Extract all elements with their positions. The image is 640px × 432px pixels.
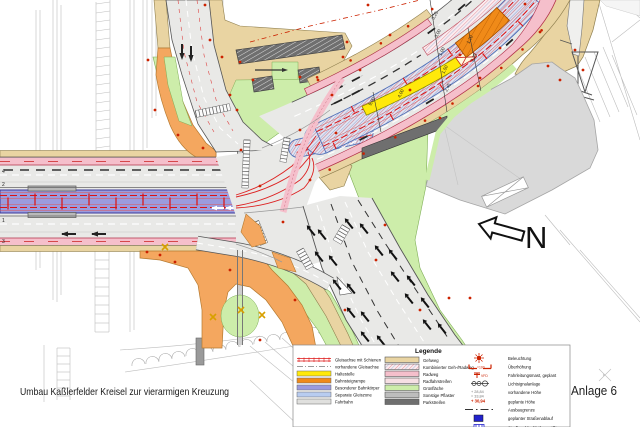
svg-text:Gleisachse mit Schienen: Gleisachse mit Schienen bbox=[335, 358, 382, 363]
svg-text:vorhandene Höhe: vorhandene Höhe bbox=[508, 390, 542, 395]
svg-text:vorhandene Gleisachse: vorhandene Gleisachse bbox=[335, 365, 380, 370]
svg-text:1: 1 bbox=[2, 218, 5, 224]
svg-text:Besonderer Bahnkörper: Besonderer Bahnkörper bbox=[335, 386, 380, 391]
svg-text:Legende: Legende bbox=[415, 348, 442, 355]
svg-text:Fahrleitungsmast, geplant: Fahrleitungsmast, geplant bbox=[508, 373, 557, 378]
svg-text:+ 30,94: + 30,94 bbox=[471, 399, 486, 404]
svg-text:Ausbaugrenze: Ausbaugrenze bbox=[508, 408, 536, 413]
svg-text:+ 28,84: + 28,84 bbox=[471, 390, 484, 394]
svg-text:Überhöhung: Überhöhung bbox=[508, 365, 532, 370]
svg-text:Bahnsteigrampe: Bahnsteigrampe bbox=[335, 379, 366, 384]
svg-text:Separate Gleiszone: Separate Gleiszone bbox=[335, 393, 372, 398]
svg-text:Beleuchtung: Beleuchtung bbox=[508, 356, 532, 361]
svg-text:Fahrbahn: Fahrbahn bbox=[335, 400, 354, 405]
svg-text:3: 3 bbox=[2, 239, 5, 245]
svg-text:Radfahrstreifen: Radfahrstreifen bbox=[423, 379, 452, 384]
svg-text:Radweg: Radweg bbox=[423, 372, 439, 377]
svg-text:Anlage 6: Anlage 6 bbox=[571, 384, 617, 398]
svg-text:Kombinierter Geh-/Radweg: Kombinierter Geh-/Radweg bbox=[423, 365, 474, 370]
svg-text:Haltestelle: Haltestelle bbox=[335, 372, 355, 377]
svg-text:4: 4 bbox=[2, 169, 5, 175]
svg-text:Grünfläche: Grünfläche bbox=[423, 386, 444, 391]
svg-text:Lichtsignalanlage: Lichtsignalanlage bbox=[508, 382, 541, 387]
svg-text:geplanter Straßenablauf: geplanter Straßenablauf bbox=[508, 416, 554, 421]
svg-text:Parkstreifen: Parkstreifen bbox=[423, 400, 446, 405]
svg-text:2: 2 bbox=[2, 182, 5, 188]
svg-text:Sonstige Pflaster: Sonstige Pflaster bbox=[423, 393, 455, 398]
svg-text:geplante Höhe: geplante Höhe bbox=[508, 400, 536, 405]
svg-text:=100: =100 bbox=[477, 366, 485, 370]
svg-text:VFD: VFD bbox=[481, 374, 488, 378]
svg-text:Gehweg: Gehweg bbox=[423, 358, 439, 363]
svg-text:N: N bbox=[525, 220, 547, 255]
svg-text:Umbau Kaßlerfelder Kreisel zur: Umbau Kaßlerfelder Kreisel zur vierarmig… bbox=[20, 386, 229, 398]
